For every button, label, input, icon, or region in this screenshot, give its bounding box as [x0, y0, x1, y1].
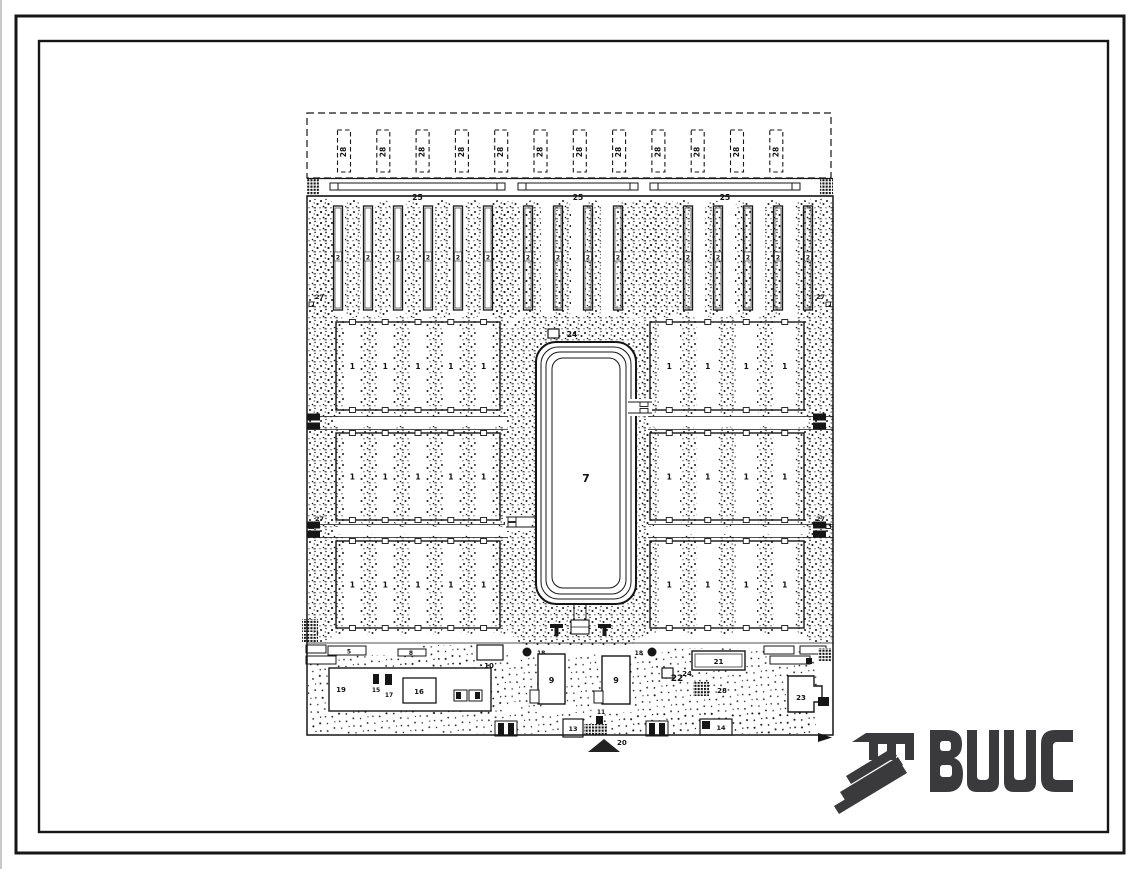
tree-belt-oval — [393, 426, 410, 527]
calf-shed-label: 2 — [586, 255, 590, 262]
gate-hatch-block — [302, 619, 318, 632]
tree-belt-oval — [345, 200, 361, 318]
barn-vent — [448, 518, 454, 523]
barn-vent — [743, 320, 749, 325]
tree-belt-oval — [426, 426, 443, 527]
tree-belt-oval — [680, 315, 697, 417]
expansion-plot-label: 28 — [732, 147, 741, 157]
calf-shed-label: 2 — [456, 255, 460, 262]
barn-label: 1 — [481, 581, 486, 590]
tree-belt-oval — [757, 426, 774, 527]
gate-post — [498, 723, 504, 735]
service-bar-label: 8 — [409, 650, 413, 657]
well-18-label: 18 — [635, 650, 643, 657]
strip-label: 25 — [720, 193, 730, 202]
barn-label: 1 — [350, 581, 355, 590]
barn-vent — [705, 539, 711, 544]
site-plan-drawing: 2828282828282828282828282525252222222222… — [0, 0, 1139, 869]
pond-pump-square — [548, 329, 559, 338]
road-gate-block — [813, 423, 826, 430]
well-18 — [523, 648, 532, 657]
sign-20-label: 20 — [617, 739, 627, 747]
logo-letter-hole — [940, 741, 951, 751]
tree-belt-oval — [360, 426, 377, 527]
building-23-label: 23 — [796, 694, 806, 702]
barn-label: 1 — [667, 473, 672, 482]
barn-vent — [481, 320, 487, 325]
barn-vent — [705, 320, 711, 325]
road-gate-block — [307, 414, 320, 421]
barn-label: 1 — [350, 473, 355, 482]
tree-belt-oval — [328, 534, 345, 635]
barn-vent — [349, 408, 355, 413]
tree-belt-oval — [719, 534, 736, 635]
hatch-square-28 — [693, 682, 709, 696]
barn-label: 1 — [705, 473, 710, 482]
barn-label: 1 — [667, 362, 672, 371]
barn-vent — [705, 518, 711, 523]
barn-vent — [705, 408, 711, 413]
barn-vent — [415, 408, 421, 413]
service-bar — [770, 656, 810, 664]
logo-letter — [1004, 730, 1036, 792]
pond-square-label: 24 — [567, 330, 577, 339]
service-bar — [764, 646, 794, 654]
barn-vent — [743, 539, 749, 544]
tree-belt-oval — [492, 426, 509, 527]
tree-belt-oval — [393, 534, 410, 635]
expansion-plot-label: 28 — [575, 147, 584, 157]
item-15 — [373, 674, 379, 684]
expansion-plot-label: 28 — [378, 147, 387, 157]
tree-belt-oval — [375, 200, 391, 318]
barn-vent — [666, 408, 672, 413]
feed-strip-cap — [630, 183, 638, 190]
well-18 — [648, 648, 657, 657]
barn-vent — [448, 320, 454, 325]
barn-label: 1 — [744, 581, 749, 590]
barn-label: 1 — [350, 362, 355, 371]
tree-belt-oval — [328, 426, 345, 527]
tree-belt-oval — [459, 534, 476, 635]
tree-belt-oval — [405, 200, 421, 318]
hydrant-symbol — [550, 624, 563, 628]
item-11-pipe — [596, 716, 603, 724]
service-bar — [306, 645, 326, 653]
building-21-label: 21 — [714, 658, 724, 666]
gate-hatch-block — [820, 179, 833, 195]
barn-vent — [782, 320, 788, 325]
tree-belt-oval — [645, 200, 661, 318]
barn-vent — [705, 626, 711, 631]
barn-vent — [666, 539, 672, 544]
barn-vent — [382, 518, 388, 523]
item-17-label: 17 — [385, 692, 393, 699]
barn-label: 1 — [782, 581, 787, 590]
barn-vent — [481, 431, 487, 436]
tree-belt-oval — [360, 534, 377, 635]
calf-shed-label: 2 — [686, 255, 690, 262]
tree-belt-oval — [680, 534, 697, 635]
barn-vent — [743, 626, 749, 631]
pond-label: 7 — [582, 472, 590, 485]
barn-label: 1 — [782, 473, 787, 482]
tree-belt-oval — [796, 426, 813, 527]
calf-shed-label: 2 — [526, 255, 530, 262]
edge-mark-label: 27 — [315, 293, 324, 301]
barn-label: 1 — [705, 362, 710, 371]
edge-mark-label: 27 — [315, 515, 324, 523]
building-14-label: 14 — [716, 724, 726, 732]
entrance-sign-20 — [588, 739, 620, 752]
barn-vent — [782, 518, 788, 523]
scan-edge — [0, 0, 2, 869]
tree-belt-oval — [630, 200, 646, 318]
watermark-logo — [834, 733, 914, 814]
barn-label: 1 — [383, 473, 388, 482]
tree-belt-oval — [796, 315, 813, 417]
tree-belt-oval — [426, 315, 443, 417]
barn-label: 1 — [481, 473, 486, 482]
barn-vent — [349, 518, 355, 523]
calf-shed-label: 2 — [616, 255, 620, 262]
calf-shed-label: 2 — [716, 255, 720, 262]
barn-label: 1 — [705, 581, 710, 590]
building-9-label: 9 — [613, 676, 619, 685]
expansion-plot-label: 28 — [614, 147, 623, 157]
tree-belt-oval — [435, 200, 451, 318]
tree-belt-oval — [426, 534, 443, 635]
pond-zone: 724 — [505, 316, 652, 646]
tree-belt-oval — [459, 426, 476, 527]
feed-strip-cap — [330, 183, 338, 190]
barn-vent — [448, 431, 454, 436]
logo-letter — [967, 730, 999, 792]
item-17 — [385, 674, 392, 685]
expansion-plot-label: 28 — [653, 147, 662, 157]
barn-vent — [382, 539, 388, 544]
gate-post — [649, 723, 655, 735]
expansion-plot-label: 28 — [693, 147, 702, 157]
feed-strip — [518, 183, 638, 190]
tree-belt-oval — [505, 200, 521, 318]
barn-vent — [382, 431, 388, 436]
barn-vent — [481, 626, 487, 631]
barn-vent — [382, 626, 388, 631]
gate-hatch-block — [302, 634, 318, 642]
calf-shed-label: 2 — [486, 255, 490, 262]
barn-vent — [415, 539, 421, 544]
barn-vent — [782, 408, 788, 413]
barn-vent — [666, 626, 672, 631]
hydrant-symbol — [603, 628, 607, 636]
calf-shed-label: 2 — [336, 255, 340, 262]
gate-hatch-block — [818, 648, 832, 661]
road-gate-block — [813, 531, 826, 538]
watermark-text — [930, 730, 1073, 792]
logo-letter-hole — [940, 765, 952, 777]
gate-post — [508, 723, 514, 735]
logo-letter — [930, 730, 963, 792]
expansion-area: 282828282828282828282828 — [307, 113, 831, 178]
feed-strip-cap — [518, 183, 526, 190]
barn-label: 1 — [383, 362, 388, 371]
gate-post — [659, 723, 665, 735]
service-dot — [806, 658, 812, 664]
barn-vent — [782, 539, 788, 544]
barn-vent — [415, 320, 421, 325]
expansion-plot-label: 28 — [771, 147, 780, 157]
feed-strip — [330, 183, 505, 190]
barn-vent — [349, 431, 355, 436]
barn-label: 1 — [481, 362, 486, 371]
tree-belt-oval — [360, 315, 377, 417]
expansion-boundary — [307, 113, 831, 178]
feed-strip — [650, 183, 800, 190]
building-10 — [477, 645, 503, 660]
twin-box-fill — [475, 692, 480, 699]
tree-belt-oval — [492, 534, 509, 635]
barn-vent — [448, 626, 454, 631]
expansion-plot-label: 28 — [418, 147, 427, 157]
service-bar-label: 5 — [347, 649, 351, 656]
barn-label: 1 — [744, 362, 749, 371]
twin-box-fill — [456, 692, 461, 699]
barn-vent — [666, 320, 672, 325]
feed-strip-cap — [497, 183, 505, 190]
tree-belt-oval — [328, 315, 345, 417]
barn-vent — [349, 320, 355, 325]
calf-shed-label: 2 — [426, 255, 430, 262]
barn-vent — [481, 539, 487, 544]
item-11-hatch — [584, 724, 608, 735]
strip-label: 25 — [573, 193, 583, 202]
barn-vent — [415, 431, 421, 436]
barn-vent — [743, 408, 749, 413]
calf-shed-label: 2 — [556, 255, 560, 262]
tree-belt-oval — [491, 200, 507, 318]
road-gate-block — [813, 414, 826, 421]
barn-vent — [415, 626, 421, 631]
barn-label: 1 — [448, 581, 453, 590]
calf-shed-label: 2 — [806, 255, 810, 262]
barn-vent — [666, 431, 672, 436]
barn-vent — [382, 320, 388, 325]
expansion-plot-label: 28 — [536, 147, 545, 157]
gate-13-label: 13 — [568, 725, 577, 733]
barn-vent — [743, 518, 749, 523]
feed-strip-cap — [650, 183, 658, 190]
calf-shed-row: 222222222222222 — [315, 200, 813, 318]
barn-label: 1 — [415, 473, 420, 482]
barn-label: 1 — [448, 362, 453, 371]
barn-label: 1 — [415, 362, 420, 371]
tree-belt-oval — [757, 534, 774, 635]
expansion-plot-label: 28 — [339, 147, 348, 157]
calf-shed-label: 2 — [776, 255, 780, 262]
service-dot — [818, 697, 829, 706]
tree-belt-oval — [459, 315, 476, 417]
barn-vent — [448, 539, 454, 544]
hydrant-symbol — [555, 628, 559, 636]
expansion-plot-label: 28 — [457, 147, 466, 157]
scanned-siteplan-page: 2828282828282828282828282525252222222222… — [0, 0, 1139, 869]
expansion-plot-label: 28 — [496, 147, 505, 157]
barn-vent — [743, 431, 749, 436]
tree-belt-oval — [719, 426, 736, 527]
barn-label: 1 — [667, 581, 672, 590]
building-14-fill — [702, 721, 710, 729]
logo-letter — [1041, 730, 1073, 792]
calf-shed-label: 2 — [746, 255, 750, 262]
item-15-label: 15 — [372, 687, 380, 694]
tree-belt-oval — [680, 426, 697, 527]
calf-shed-label: 2 — [366, 255, 370, 262]
edge-mark-label: 27 — [816, 293, 825, 301]
tree-belt-oval — [719, 315, 736, 417]
calf-shed-label: 2 — [396, 255, 400, 262]
barn-label: 1 — [782, 362, 787, 371]
barn-vent — [349, 539, 355, 544]
feed-strip-cap — [792, 183, 800, 190]
barn-vent — [705, 431, 711, 436]
building-9-annex — [594, 691, 603, 703]
barn-vent — [448, 408, 454, 413]
item-11-label: 11 — [597, 709, 605, 716]
tree-belt-oval — [757, 315, 774, 417]
area-22-label: 22 — [671, 674, 684, 684]
road-gate-block — [307, 423, 320, 430]
gate-hatch-block — [307, 179, 320, 195]
barn-label: 1 — [744, 473, 749, 482]
barn-label: 1 — [415, 581, 420, 590]
road-gate-block — [307, 531, 320, 538]
barn-vent — [481, 408, 487, 413]
tree-belt-oval — [492, 315, 509, 417]
tree-belt-oval — [796, 534, 813, 635]
barn-vent — [382, 408, 388, 413]
building-16-label: 16 — [414, 688, 424, 696]
hydrant-symbol — [598, 624, 611, 628]
building-9-label: 9 — [549, 676, 555, 685]
hatch-28-label: 28 — [717, 687, 727, 695]
barn-vent — [349, 626, 355, 631]
building-9-annex — [530, 690, 539, 703]
edge-mark-label: 27 — [816, 515, 825, 523]
tree-belt-oval — [393, 315, 410, 417]
tree-belt-oval — [660, 200, 676, 318]
barn-vent — [666, 518, 672, 523]
barn-vent — [415, 518, 421, 523]
building-19-label: 19 — [336, 686, 346, 694]
top-road-band: 252525 — [307, 179, 833, 203]
barn-vent — [782, 626, 788, 631]
barn-vent — [782, 431, 788, 436]
barn-vent — [481, 518, 487, 523]
barn-label: 1 — [383, 581, 388, 590]
barn-label: 1 — [448, 473, 453, 482]
service-bar — [306, 656, 336, 664]
tree-belt-oval — [465, 200, 481, 318]
square-24-label: 24 — [682, 670, 692, 678]
